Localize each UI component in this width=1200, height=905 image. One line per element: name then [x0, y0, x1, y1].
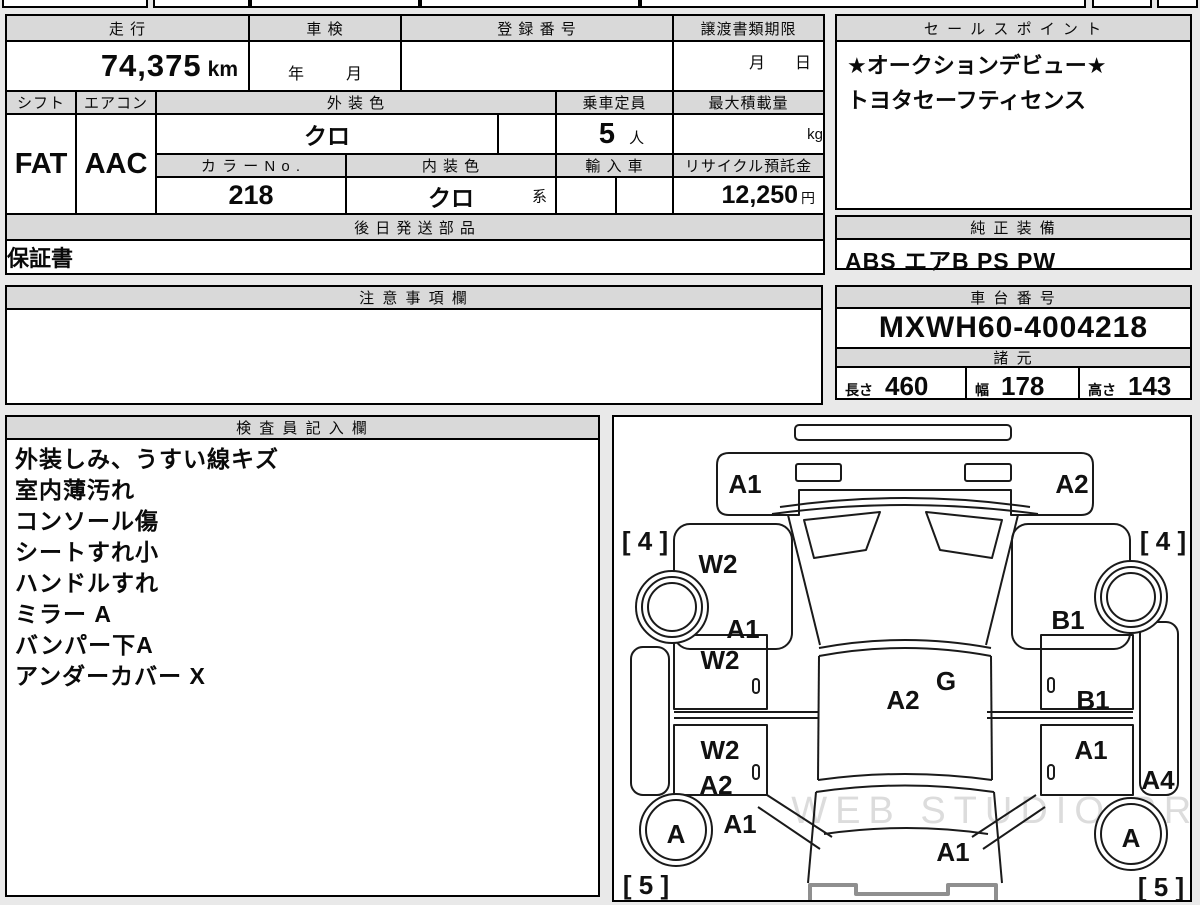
genuine-equipment-header: 純 正 装 備	[837, 217, 1190, 240]
cutoff-row-cell	[2, 0, 148, 8]
import-value-cell-2	[616, 177, 673, 214]
headlight-left-shape	[796, 464, 841, 481]
spec-width-label: 幅	[975, 380, 989, 400]
inspector-line: コンソール傷	[15, 506, 590, 537]
damage-code-front-door-right: B1	[1076, 685, 1109, 715]
aircon-header: エアコン	[76, 91, 156, 114]
door-handle	[753, 765, 759, 779]
capacity-header: 乗車定員	[556, 91, 673, 114]
interior-color-cell: クロ 系	[346, 177, 556, 214]
mileage-unit: km	[208, 58, 238, 82]
sales-point-line-2: トヨタセーフティセンス	[847, 83, 1180, 118]
spec-length: 長さ 460	[837, 368, 965, 400]
shaken-year-label: 年	[288, 60, 304, 84]
damage-code-cowl-center: G	[936, 666, 956, 696]
damage-code-front-fender-right: B1	[1051, 605, 1084, 635]
inspector-line: 外装しみ、うすい線キズ	[15, 444, 590, 475]
capacity-value-cell: 5 人	[556, 114, 673, 154]
damage-code-side-rear-right: A4	[1141, 765, 1175, 795]
recycle-value: 12,250	[722, 181, 798, 210]
damage-code-front-fender-left: W2	[699, 549, 738, 579]
notes-box: 注 意 事 項 欄	[5, 285, 823, 405]
cutoff-row-cell	[250, 0, 420, 8]
headlight-right-shape	[965, 464, 1011, 481]
chassis-box: 車 台 番 号 MXWH60-4004218 諸 元 長さ 460 幅 178 …	[835, 285, 1192, 400]
cutoff-row-cell	[1092, 0, 1152, 8]
inspector-notes-box: 検 査 員 記 入 欄 外装しみ、うすい線キズ 室内薄汚れ コンソール傷 シート…	[5, 415, 600, 897]
wiper-right-shape	[926, 512, 1002, 558]
rocker-left-shape	[631, 647, 669, 795]
import-header: 輸 入 車	[556, 154, 673, 177]
sales-point-box: セ ー ル ス ポ イ ン ト ★オークションデビュー★ トヨタセーフティセンス	[835, 14, 1192, 210]
exterior-color-extra-cell	[498, 114, 556, 154]
inspector-line: バンパー下A	[15, 630, 590, 661]
inspector-line: ハンドルすれ	[15, 568, 590, 599]
specs-header: 諸 元	[837, 347, 1190, 368]
damage-code-bracket-rear-right: [ 5 ]	[1138, 872, 1184, 900]
shaken-value-cell: 年 月	[249, 41, 401, 91]
chassis-header: 車 台 番 号	[837, 287, 1190, 309]
later-parts-header: 後 日 発 送 部 品	[6, 214, 824, 240]
shift-header: シフト	[6, 91, 76, 114]
exterior-color-header: 外 装 色	[156, 91, 556, 114]
damage-code-rear-quarter-left: A1	[723, 809, 756, 839]
capacity-value: 5	[599, 118, 615, 151]
registration-header: 登 録 番 号	[401, 15, 673, 41]
inspector-line: 室内薄汚れ	[15, 475, 590, 506]
color-no-header: カ ラ ー N o .	[156, 154, 346, 177]
sales-point-header: セ ー ル ス ポ イ ン ト	[837, 16, 1190, 42]
capacity-unit: 人	[629, 127, 644, 148]
genuine-equipment-box: 純 正 装 備 ABS エアB PS PW	[835, 215, 1192, 270]
damage-code-rear-wheel-right: A	[1122, 823, 1141, 853]
transfer-month-label: 月	[749, 49, 765, 73]
damage-code-bracket-front-left: [ 4 ]	[622, 526, 668, 556]
inspector-notes-body: 外装しみ、うすい線キズ 室内薄汚れ コンソール傷 シートすれ小 ハンドルすれ ミ…	[7, 440, 598, 696]
damage-code-bracket-front-right: [ 4 ]	[1140, 526, 1186, 556]
door-handle	[753, 679, 759, 693]
cutoff-row-cell	[640, 0, 1086, 8]
door-handle	[1048, 678, 1054, 692]
spec-height: 高さ 143	[1078, 368, 1190, 400]
notes-header: 注 意 事 項 欄	[7, 287, 821, 310]
interior-color-header: 内 装 色	[346, 154, 556, 177]
cutoff-row-cell	[153, 0, 250, 8]
door-handle	[1048, 765, 1054, 779]
max-load-header: 最大積載量	[673, 91, 824, 114]
damage-code-rear-door-right: A1	[1074, 735, 1107, 765]
spec-height-label: 高さ	[1088, 380, 1116, 400]
mileage-value: 74,375	[101, 48, 202, 84]
wiper-left-shape	[804, 512, 880, 558]
damage-code-rear-wheel-left: A	[667, 819, 686, 849]
recycle-header: リサイクル預託金	[673, 154, 824, 177]
import-value-cell-1	[556, 177, 616, 214]
spec-width: 幅 178	[965, 368, 1078, 400]
damage-code-rear-hatch-center: A1	[936, 837, 969, 867]
transfer-deadline-header: 譲渡書類期限	[673, 15, 824, 41]
plate-shape	[795, 425, 1011, 440]
transfer-value-cell: 月 日	[673, 41, 824, 91]
shaken-month-label: 月	[346, 60, 362, 84]
sales-point-line-1: ★オークションデビュー★	[847, 48, 1180, 83]
max-load-unit: kg	[673, 114, 824, 154]
rear-bumper-shape	[810, 885, 996, 900]
exterior-color-value: クロ	[156, 114, 498, 154]
registration-value-cell	[401, 41, 673, 91]
front-wheel-left-shape	[636, 571, 708, 643]
damage-code-front-door-area-left: A1	[726, 614, 759, 644]
spec-length-value: 460	[885, 371, 928, 402]
car-damage-diagram: WEB STUDIO.PRO	[614, 417, 1190, 900]
shift-value: FAT	[6, 114, 76, 214]
damage-code-front-bumper-right: A2	[1055, 469, 1088, 499]
genuine-equipment-value: ABS エアB PS PW	[837, 240, 1190, 278]
spec-height-value: 143	[1128, 371, 1171, 402]
recycle-unit: 円	[801, 188, 815, 208]
damage-code-bracket-rear-left: [ 5 ]	[623, 870, 669, 900]
inspector-line: ミラー A	[15, 599, 590, 630]
damage-code-roof-center: A2	[886, 685, 919, 715]
later-parts-value: 保証書	[6, 240, 824, 274]
notes-body	[7, 310, 821, 403]
shaken-header: 車 検	[249, 15, 401, 41]
front-wheel-right-shape	[1095, 561, 1167, 633]
transfer-day-label: 日	[795, 49, 811, 73]
vehicle-info-table: 走 行 車 検 登 録 番 号 譲渡書類期限 74,375 km 年 月 月 日…	[5, 14, 825, 275]
cutoff-row-cell	[420, 0, 640, 8]
aircon-value: AAC	[76, 114, 156, 214]
inspector-notes-header: 検 査 員 記 入 欄	[7, 417, 598, 440]
damage-code-rear-door-left-a2: A2	[699, 770, 732, 800]
interior-color-suffix: 系	[532, 185, 547, 206]
interior-color-value: クロ	[347, 179, 555, 213]
damage-code-rear-door-left-w2: W2	[701, 735, 740, 765]
spec-length-label: 長さ	[845, 380, 873, 400]
damage-code-front-door-left: W2	[701, 645, 740, 675]
color-no-value: 218	[156, 177, 346, 214]
recycle-value-cell: 12,250 円	[673, 177, 824, 214]
mileage-value-cell: 74,375 km	[6, 41, 249, 91]
car-diagram-box: WEB STUDIO.PRO	[612, 415, 1192, 902]
mileage-header: 走 行	[6, 15, 249, 41]
cutoff-row-cell	[1157, 0, 1198, 8]
inspector-line: シートすれ小	[15, 537, 590, 568]
inspector-line: アンダーカバー X	[15, 661, 590, 692]
spec-width-value: 178	[1001, 371, 1044, 402]
chassis-value: MXWH60-4004218	[837, 309, 1190, 347]
damage-code-front-bumper-left: A1	[728, 469, 761, 499]
